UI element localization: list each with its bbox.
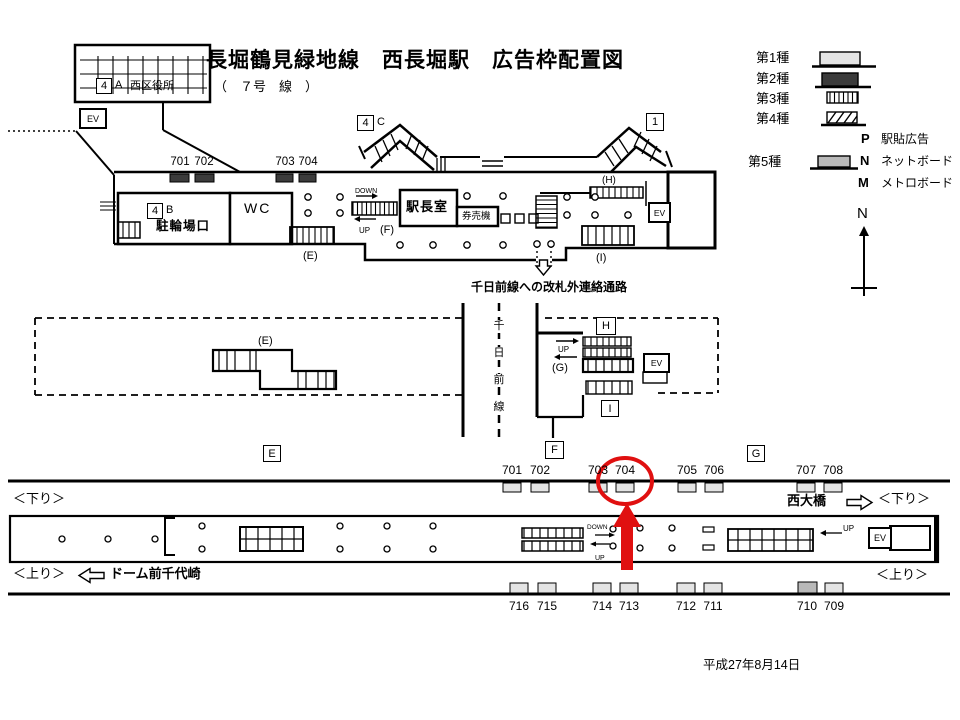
page-subtitle: （ ７号 線 ） [196,80,336,93]
ticket-machine-label: 券売機 [462,212,491,222]
legend-m-letter: M [858,176,869,189]
exit-4a-number: 4 [101,80,107,92]
platform-ad-701: 701 [502,464,522,476]
box-e: E [263,445,281,462]
exit-1-box: 1 [646,113,664,131]
legend-type2-label: 第2種 [756,72,789,85]
ticket-gate [501,214,510,223]
ad-board-703 [276,174,293,182]
platform-ad-707: 707 [796,464,816,476]
legend-type5-chip [818,156,850,167]
label-f: (F) [380,225,394,236]
ward-office-label: 西区役所 [130,81,174,92]
ev-label: EV [654,208,665,218]
ev-entrance-a: EV [79,108,107,129]
station-ad-diagram: 長堀鶴見緑地線 西長堀駅 広告枠配置図 （ ７号 線 ） 第1種 第2種 第3種… [0,0,960,720]
exit-4c-letter: C [377,117,385,128]
legend-type5-label: 第5種 [748,155,781,168]
exit-1-number: 1 [652,116,658,128]
legend-type3-chip [827,92,858,103]
box-f: F [545,441,564,459]
ticket-gate [515,214,524,223]
exit-4b-box: 4 [147,203,163,219]
legend-type4-label: 第4種 [756,112,789,125]
ad-number-701: 701 [170,157,189,169]
upper-corridor [359,125,672,172]
h-label: H [602,320,610,332]
ad-number-704: 704 [298,157,317,169]
platform-ad-702: 702 [530,464,550,476]
label-i-concourse: (I) [596,253,606,264]
up-label-mezzanine: UP [558,346,569,354]
bike-entrance-label: 駐輪場口 [156,220,210,233]
platform-ad-703: 703 [588,464,608,476]
stairs-e [290,227,334,244]
platform-end-room [890,526,930,550]
ad-board-701 [170,174,189,182]
legend-n-letter: N [860,154,869,167]
down-label-platform: DOWN [587,525,608,532]
exit-4c-number: 4 [362,117,368,129]
platform-ad-711: 711 [703,600,722,612]
platform-ad-706: 706 [704,464,724,476]
left-arrow-outline [79,569,104,583]
ev-platform: EV [868,527,892,549]
legend-type1-chip [820,52,860,65]
station-office-label: 駅長室 [406,200,448,213]
passage-note: 千日前線への改札外連絡通路 [467,281,631,293]
ad-board-704 [299,174,316,182]
legend-type1-label: 第1種 [756,51,789,64]
platform-ad-704: 704 [615,464,635,476]
right-arrow-outline [847,496,872,510]
legend-type3-label: 第3種 [756,92,789,105]
next-station-left: ドーム前千代崎 [110,567,201,580]
exit-4a-box: 4 [96,78,112,94]
bench [703,545,714,550]
platform-ad-705: 705 [677,464,697,476]
platform-ad-714: 714 [592,600,612,612]
platform-ad-716: 716 [509,600,529,612]
legend-type2-chip [822,73,858,86]
legend-symbols [810,52,877,296]
platform-stairs-down [522,528,583,538]
label-e-concourse: (E) [303,251,318,262]
ev-concourse: EV [648,202,671,223]
dir-down-left: ＜下り＞ [13,492,65,505]
platform-ad-713: 713 [619,600,639,612]
stairs [118,222,140,238]
revision-date: 平成27年8月14日 [703,659,800,672]
page-title: 長堀鶴見緑地線 西長堀駅 広告枠配置図 [180,50,650,71]
line-char-2: 日 [493,347,506,360]
ev-label: EV [87,114,99,124]
platform-ad-712: 712 [676,600,696,612]
exit-4c-box: 4 [357,115,374,131]
legend-p-text: 駅貼広告 [881,133,929,145]
bottom-ad-boards [510,582,843,593]
wc-label: WC [244,201,271,215]
bench [703,527,714,532]
e-label: E [268,448,275,460]
platform-stairs-up [522,541,583,551]
platform-ad-715: 715 [537,600,557,612]
ev-label: EV [651,358,662,368]
stairs-i [582,226,634,245]
next-station-right: 西大橋 [787,494,826,507]
label-g: (G) [552,363,568,374]
f-label: F [551,444,558,456]
up-label-concourse: UP [359,227,370,235]
stairs-f [352,202,397,215]
legend-p-letter: P [861,132,870,145]
g-label: G [752,448,761,460]
label-h-concourse: (H) [602,176,616,186]
down-label-concourse: DOWN [355,188,377,195]
line-char-4: 線 [493,401,506,414]
platform-ad-710: 710 [797,600,817,612]
ad-number-703: 703 [275,157,294,169]
down-arrow-outline [536,260,551,275]
platform-ad-709: 709 [824,600,844,612]
ad-board-702 [195,174,214,182]
label-e-mezzanine: (E) [258,336,273,347]
up-label-platform: UP [595,555,605,562]
ev-mezzanine: EV [643,353,670,373]
legend-n-text: ネットボード [881,155,953,167]
compass-n-label: N [857,206,868,221]
exit-4a-letter: A [115,80,122,91]
up-label-platform-right: UP [843,525,854,533]
ad-number-702: 702 [194,157,213,169]
exit-4b-number: 4 [152,205,158,217]
legend-m-text: メトロボード [881,177,953,189]
dir-up-right: ＜上り＞ [876,568,928,581]
box-i: I [601,400,619,417]
line-char-3: 前 [493,374,506,387]
dir-up-left: ＜上り＞ [13,567,65,580]
platform-ad-708: 708 [823,464,843,476]
dir-down-right: ＜下り＞ [878,492,930,505]
stairs-passage [536,196,557,228]
box-h: H [596,317,616,335]
line-char-1: 千 [493,320,506,333]
ev-label: EV [874,533,886,543]
box-g: G [747,445,765,462]
i-label: I [608,403,611,415]
exit-4b-letter: B [166,205,173,216]
top-ad-boards [503,483,842,492]
